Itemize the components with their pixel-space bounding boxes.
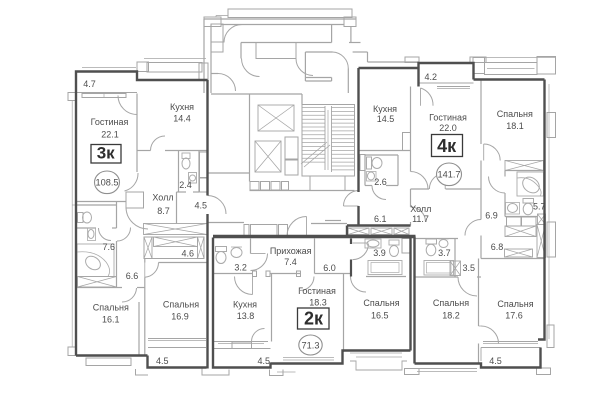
svg-text:4.2: 4.2 [424,72,437,82]
svg-text:2.6: 2.6 [374,177,387,187]
svg-text:Спальня: Спальня [433,298,469,308]
svg-text:11.7: 11.7 [412,214,429,224]
svg-text:Холл: Холл [410,204,431,214]
svg-text:3.5: 3.5 [462,263,475,273]
svg-text:Спальня: Спальня [93,302,129,312]
svg-text:Прихожая: Прихожая [270,246,312,256]
svg-text:71.3: 71.3 [302,340,320,350]
svg-text:6.6: 6.6 [126,271,139,281]
svg-text:14.4: 14.4 [173,113,191,123]
svg-text:6.9: 6.9 [485,211,498,221]
svg-text:13.8: 13.8 [237,311,255,321]
svg-text:22.0: 22.0 [439,123,457,133]
svg-text:Гостиная: Гостиная [298,286,336,296]
svg-text:3.2: 3.2 [234,262,247,272]
svg-text:4.6: 4.6 [182,249,195,259]
svg-text:6.1: 6.1 [374,214,387,224]
svg-text:Кухня: Кухня [233,299,257,309]
svg-text:108.5: 108.5 [96,178,119,188]
svg-text:3.7: 3.7 [438,248,451,258]
svg-text:18.3: 18.3 [309,297,327,307]
svg-text:4.5: 4.5 [156,356,169,366]
svg-text:Холл: Холл [152,192,173,202]
svg-text:2к: 2к [304,309,324,329]
svg-text:141.7: 141.7 [438,170,461,180]
svg-text:22.1: 22.1 [101,129,119,139]
svg-text:Спальня: Спальня [163,299,199,309]
svg-text:7.6: 7.6 [103,242,116,252]
svg-text:4.5: 4.5 [489,356,502,366]
svg-text:4.5: 4.5 [257,356,270,366]
svg-text:Спальня: Спальня [497,109,533,119]
svg-text:6.0: 6.0 [323,263,336,273]
svg-text:16.5: 16.5 [371,311,389,321]
svg-text:8.7: 8.7 [157,206,170,216]
svg-text:14.5: 14.5 [377,114,395,124]
svg-text:Спальня: Спальня [363,298,399,308]
svg-text:4.5: 4.5 [195,201,208,211]
svg-text:Кухня: Кухня [170,102,194,112]
svg-text:Спальня: Спальня [497,299,533,309]
svg-text:18.2: 18.2 [442,311,460,321]
svg-text:16.1: 16.1 [102,314,120,324]
svg-text:Гостиная: Гостиная [91,117,129,127]
svg-text:7.4: 7.4 [284,257,297,267]
svg-text:Кухня: Кухня [373,104,397,114]
svg-text:2.4: 2.4 [179,180,192,190]
svg-text:4.7: 4.7 [83,79,96,89]
svg-text:18.1: 18.1 [506,121,524,131]
svg-text:17.6: 17.6 [505,311,523,321]
svg-text:3к: 3к [97,144,115,163]
svg-text:3.9: 3.9 [373,248,386,258]
svg-text:6.8: 6.8 [491,242,504,252]
svg-text:Гостиная: Гостиная [429,112,467,122]
svg-text:4к: 4к [437,136,457,156]
svg-text:16.9: 16.9 [171,311,189,321]
svg-text:5.7: 5.7 [533,201,546,211]
